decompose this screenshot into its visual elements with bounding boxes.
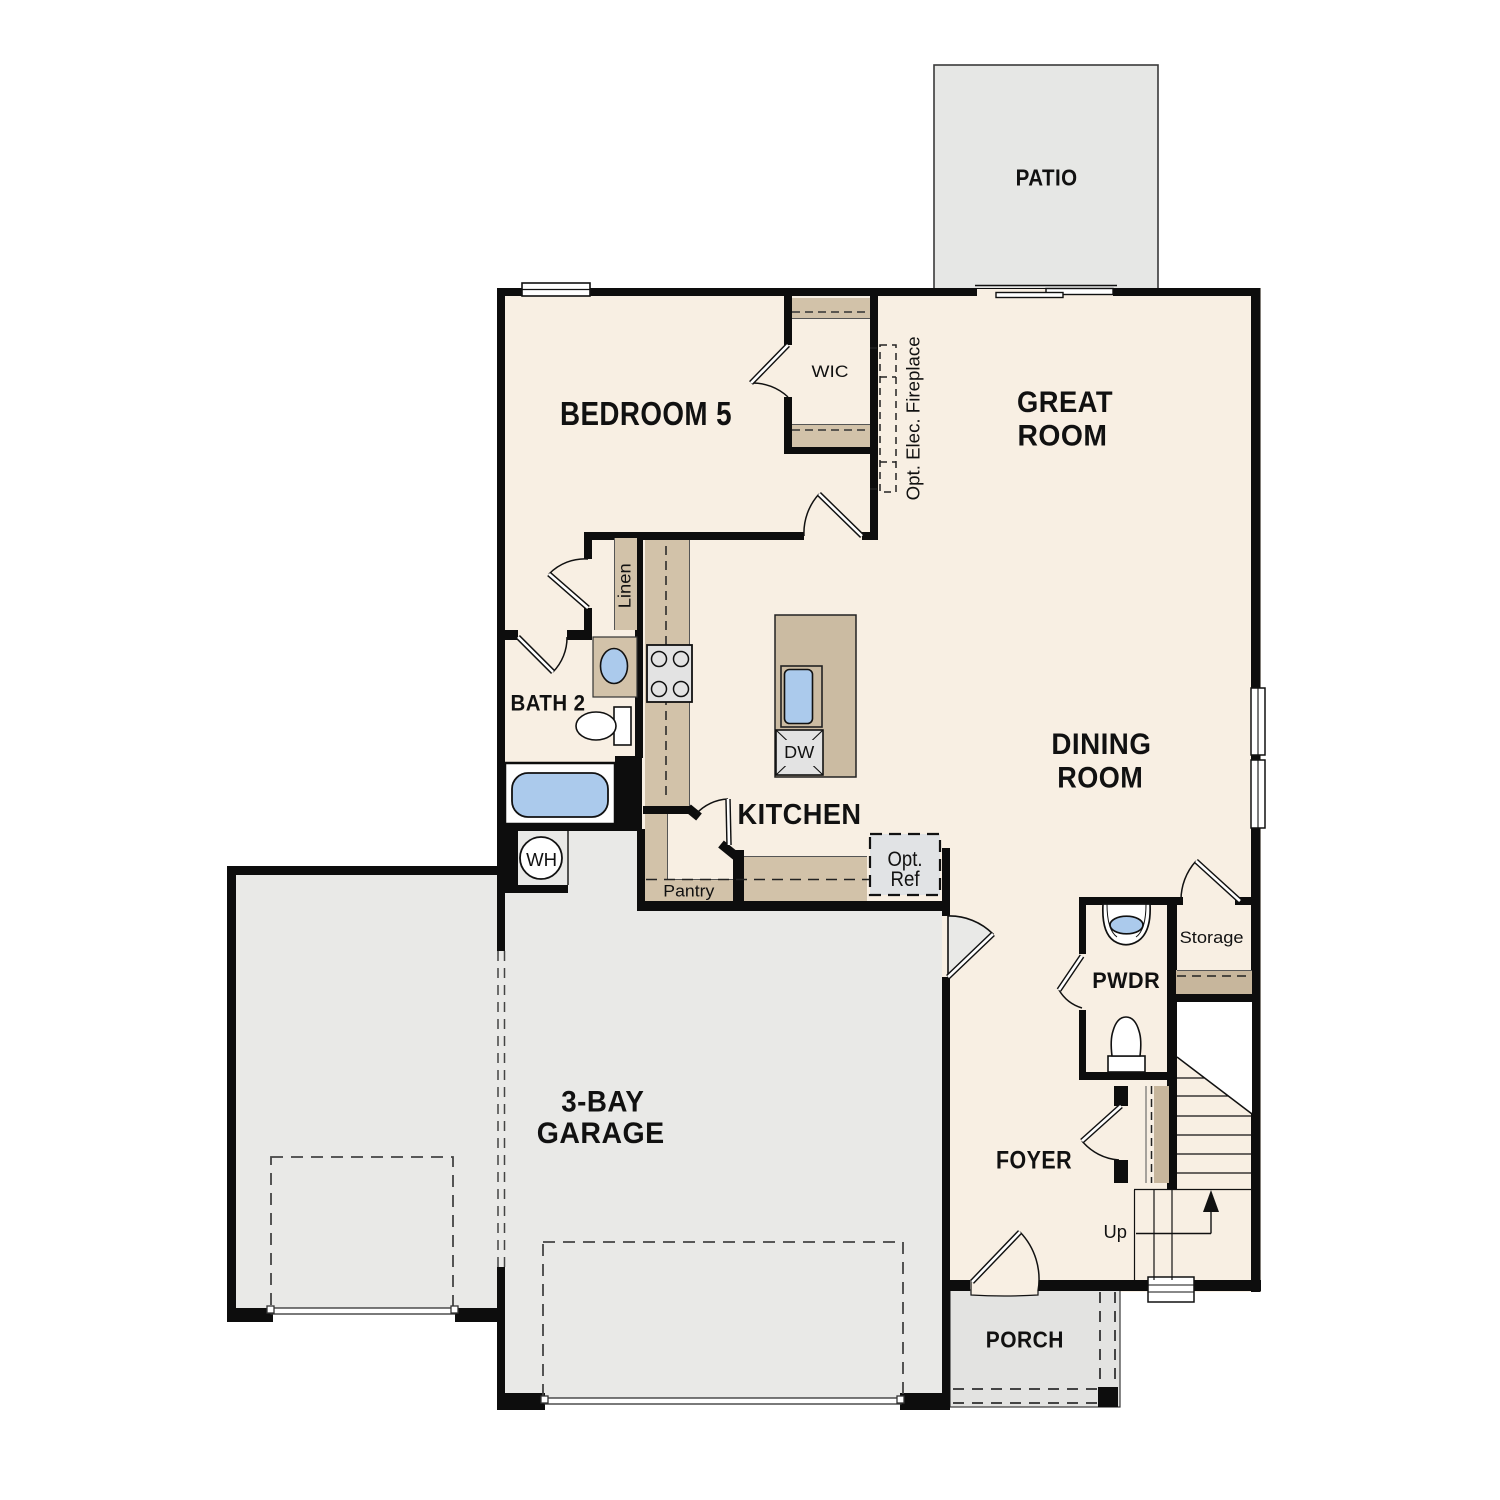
svg-text:ROOM: ROOM [1057, 762, 1143, 795]
svg-text:Up: Up [1103, 1221, 1127, 1242]
svg-text:FOYER: FOYER [996, 1147, 1072, 1175]
svg-text:ROOM: ROOM [1018, 420, 1108, 453]
svg-text:WIC: WIC [812, 362, 849, 381]
svg-text:Pantry: Pantry [663, 881, 715, 900]
svg-text:DINING: DINING [1051, 728, 1151, 761]
svg-text:GREAT: GREAT [1017, 386, 1113, 419]
svg-text:3-BAY: 3-BAY [561, 1086, 644, 1119]
svg-text:BEDROOM 5: BEDROOM 5 [560, 395, 732, 432]
svg-text:PWDR: PWDR [1092, 968, 1160, 993]
svg-text:DW: DW [784, 742, 814, 762]
svg-text:GARAGE: GARAGE [537, 1117, 665, 1150]
svg-text:Opt. Elec. Fireplace: Opt. Elec. Fireplace [903, 336, 924, 500]
svg-text:PATIO: PATIO [1016, 165, 1078, 191]
svg-text:BATH 2: BATH 2 [511, 691, 586, 716]
svg-text:Ref: Ref [891, 868, 920, 891]
svg-text:WH: WH [526, 850, 557, 870]
svg-text:KITCHEN: KITCHEN [738, 799, 862, 831]
svg-text:PORCH: PORCH [986, 1327, 1064, 1353]
svg-text:Linen: Linen [615, 563, 635, 608]
svg-text:Storage: Storage [1180, 928, 1244, 947]
